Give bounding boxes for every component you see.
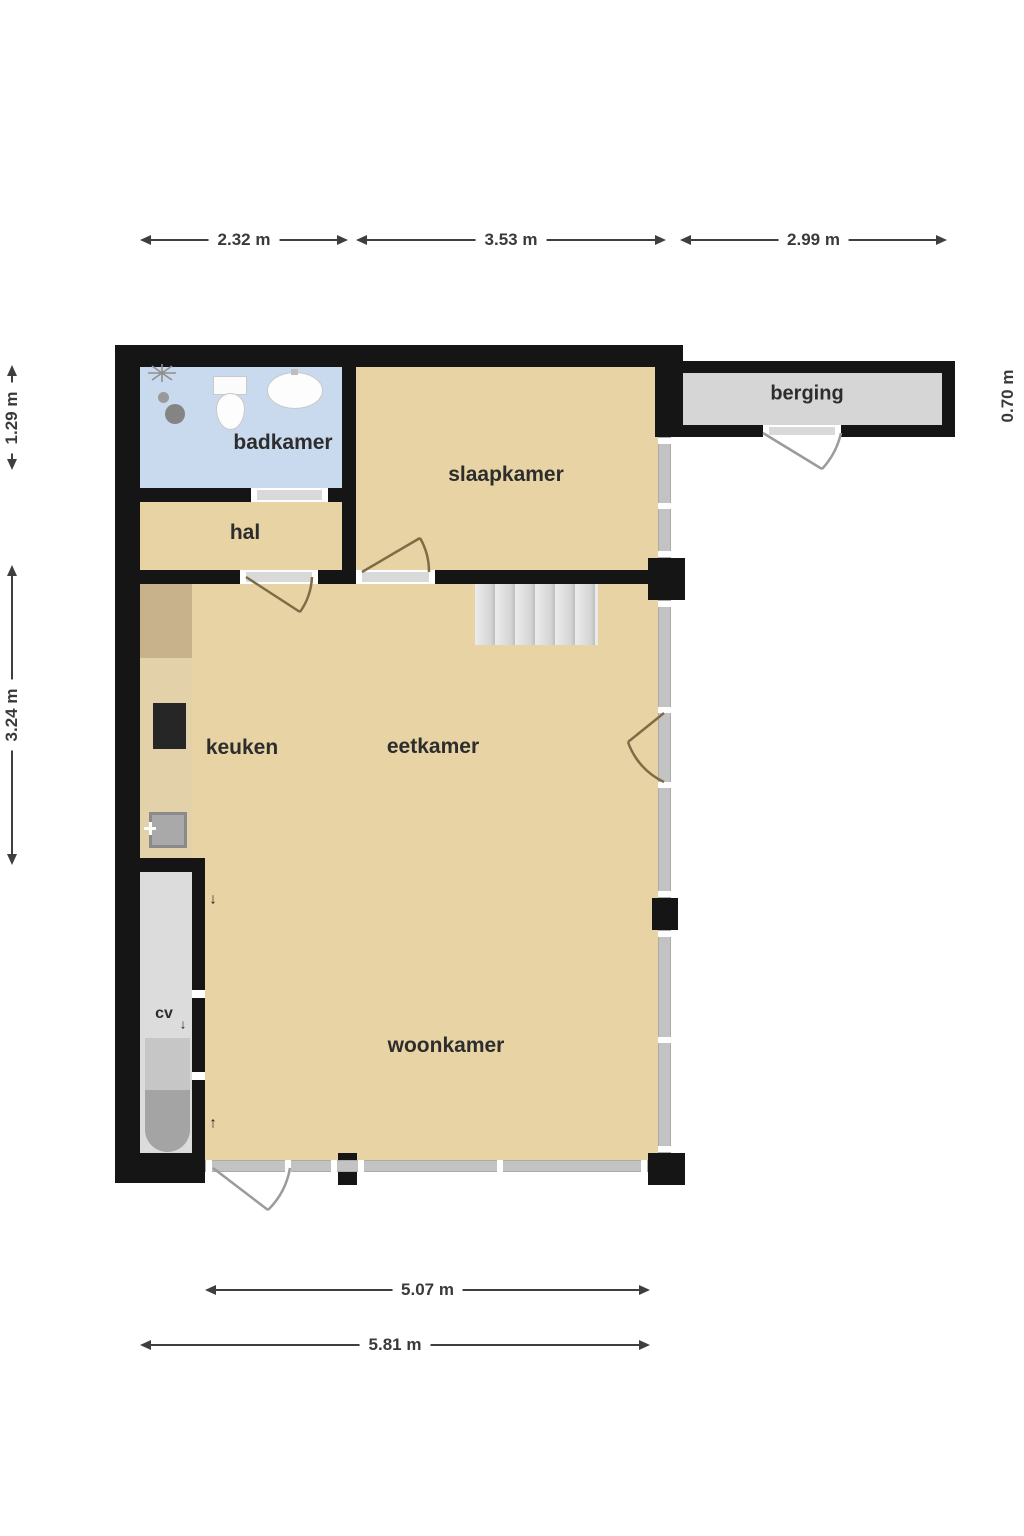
stairs — [475, 582, 598, 645]
label-cv: cv — [155, 1005, 173, 1023]
door-front — [213, 1168, 290, 1210]
kitchen-faucet-mark-2 — [149, 822, 152, 835]
arrow-down-icon: ↓ — [209, 891, 217, 908]
cv-door-jamb-bottom — [192, 1072, 205, 1080]
wall-cv-right — [192, 872, 205, 1155]
window-right-middle — [658, 600, 671, 898]
wall-badkamer-slaapkamer — [342, 367, 356, 584]
label-berging: berging — [770, 383, 843, 406]
window-tick — [658, 891, 671, 897]
window-tick — [658, 931, 671, 937]
label-keuken: keuken — [206, 736, 278, 760]
dim-top-badkamer-label: 2.32 m — [209, 230, 280, 250]
bathroom-tap-icon — [291, 369, 298, 375]
berging-door-threshold — [763, 427, 841, 435]
dim-bottom-outer-label: 5.81 m — [360, 1335, 431, 1355]
door-berging — [763, 433, 841, 469]
wall-badkamer-bottom-a — [140, 488, 257, 502]
dim-left-badkamer: 1.29 m — [3, 365, 21, 470]
window-tick — [331, 1160, 337, 1172]
label-woonkamer: woonkamer — [388, 1034, 505, 1058]
window-tick — [658, 438, 671, 444]
shower-drain-icon — [165, 404, 185, 424]
berging-door-jamb-left — [763, 425, 769, 437]
arrow-up-icon: ↑ — [209, 1115, 217, 1132]
dim-left-keuken-label: 3.24 m — [2, 680, 22, 751]
kitchen-counter-upper — [140, 584, 192, 658]
boiler-bowl-icon — [145, 1090, 190, 1152]
window-tick — [641, 1160, 647, 1172]
window-tick — [658, 601, 671, 607]
berging-door-jamb-right — [835, 425, 841, 437]
wall-berging-bottom-a — [670, 425, 763, 437]
window-right-upper — [658, 437, 671, 558]
label-badkamer: badkamer — [233, 431, 332, 455]
stove-icon — [153, 703, 186, 749]
wall-right-junction-block — [648, 558, 685, 600]
wall-berging-top — [670, 361, 955, 373]
slaapkamer-door-threshold — [362, 572, 429, 582]
label-slaapkamer: slaapkamer — [448, 463, 564, 487]
wall-right-pier — [652, 898, 678, 930]
dim-bottom-outer: 5.81 m — [140, 1336, 650, 1354]
hal-door-jamb-right — [312, 570, 318, 584]
bathroom-sink-icon — [267, 372, 323, 409]
floorplan-canvas: 2.32 m 3.53 m 2.99 m 1.29 m 3.24 m 0.70 … — [0, 0, 1024, 1536]
shower-knob-icon — [158, 392, 169, 403]
cv-door-jamb-top — [192, 990, 205, 998]
dim-left-keuken: 3.24 m — [3, 565, 21, 865]
dim-top-slaapkamer-label: 3.53 m — [476, 230, 547, 250]
dim-bottom-inner: 5.07 m — [205, 1281, 650, 1299]
dim-left-badkamer-label: 1.29 m — [2, 382, 22, 453]
wall-hal-bottom-a — [140, 570, 240, 584]
window-tick — [658, 503, 671, 509]
wall-berging-bottom-b — [841, 425, 955, 437]
wall-top — [115, 345, 683, 367]
wall-bottom-left-block — [115, 1153, 205, 1183]
badkamer-door-threshold — [257, 490, 322, 500]
slaapkamer-door-jamb-right — [429, 570, 435, 584]
window-tick — [497, 1160, 503, 1172]
wall-right-upper — [655, 345, 683, 437]
wall-slaapkamer-bottom — [435, 570, 655, 584]
dim-top-badkamer: 2.32 m — [140, 231, 348, 249]
window-tick — [358, 1160, 364, 1172]
label-hal: hal — [230, 521, 260, 545]
cv-arrow-down-icon: ↓ — [180, 1017, 187, 1032]
window-tick — [206, 1160, 212, 1172]
window-tick — [658, 551, 671, 557]
wall-left — [115, 345, 140, 1183]
window-tick — [658, 1146, 671, 1152]
badkamer-door-jamb-left — [251, 488, 257, 502]
wall-hal-bottom-b — [318, 570, 356, 584]
hal-door-jamb-left — [240, 570, 246, 584]
dim-right-berging-label: 0.70 m — [998, 370, 1018, 423]
hal-door-threshold — [246, 572, 312, 582]
window-tick — [658, 707, 671, 713]
dim-top-berging: 2.99 m — [680, 231, 947, 249]
window-bottom — [205, 1160, 648, 1172]
room-living-floor — [140, 584, 658, 1160]
label-eetkamer: eetkamer — [387, 735, 479, 759]
window-tick — [285, 1160, 291, 1172]
wall-bottom-right-block — [648, 1153, 685, 1185]
window-tick — [658, 1037, 671, 1043]
window-tick — [658, 782, 671, 788]
slaapkamer-door-jamb-left — [356, 570, 362, 584]
dim-top-slaapkamer: 3.53 m — [356, 231, 666, 249]
badkamer-door-jamb-right — [322, 488, 328, 502]
kitchen-sink-icon — [149, 812, 187, 848]
dim-top-berging-label: 2.99 m — [778, 230, 849, 250]
wall-cv-top — [140, 858, 205, 872]
dim-bottom-inner-label: 5.07 m — [392, 1280, 463, 1300]
